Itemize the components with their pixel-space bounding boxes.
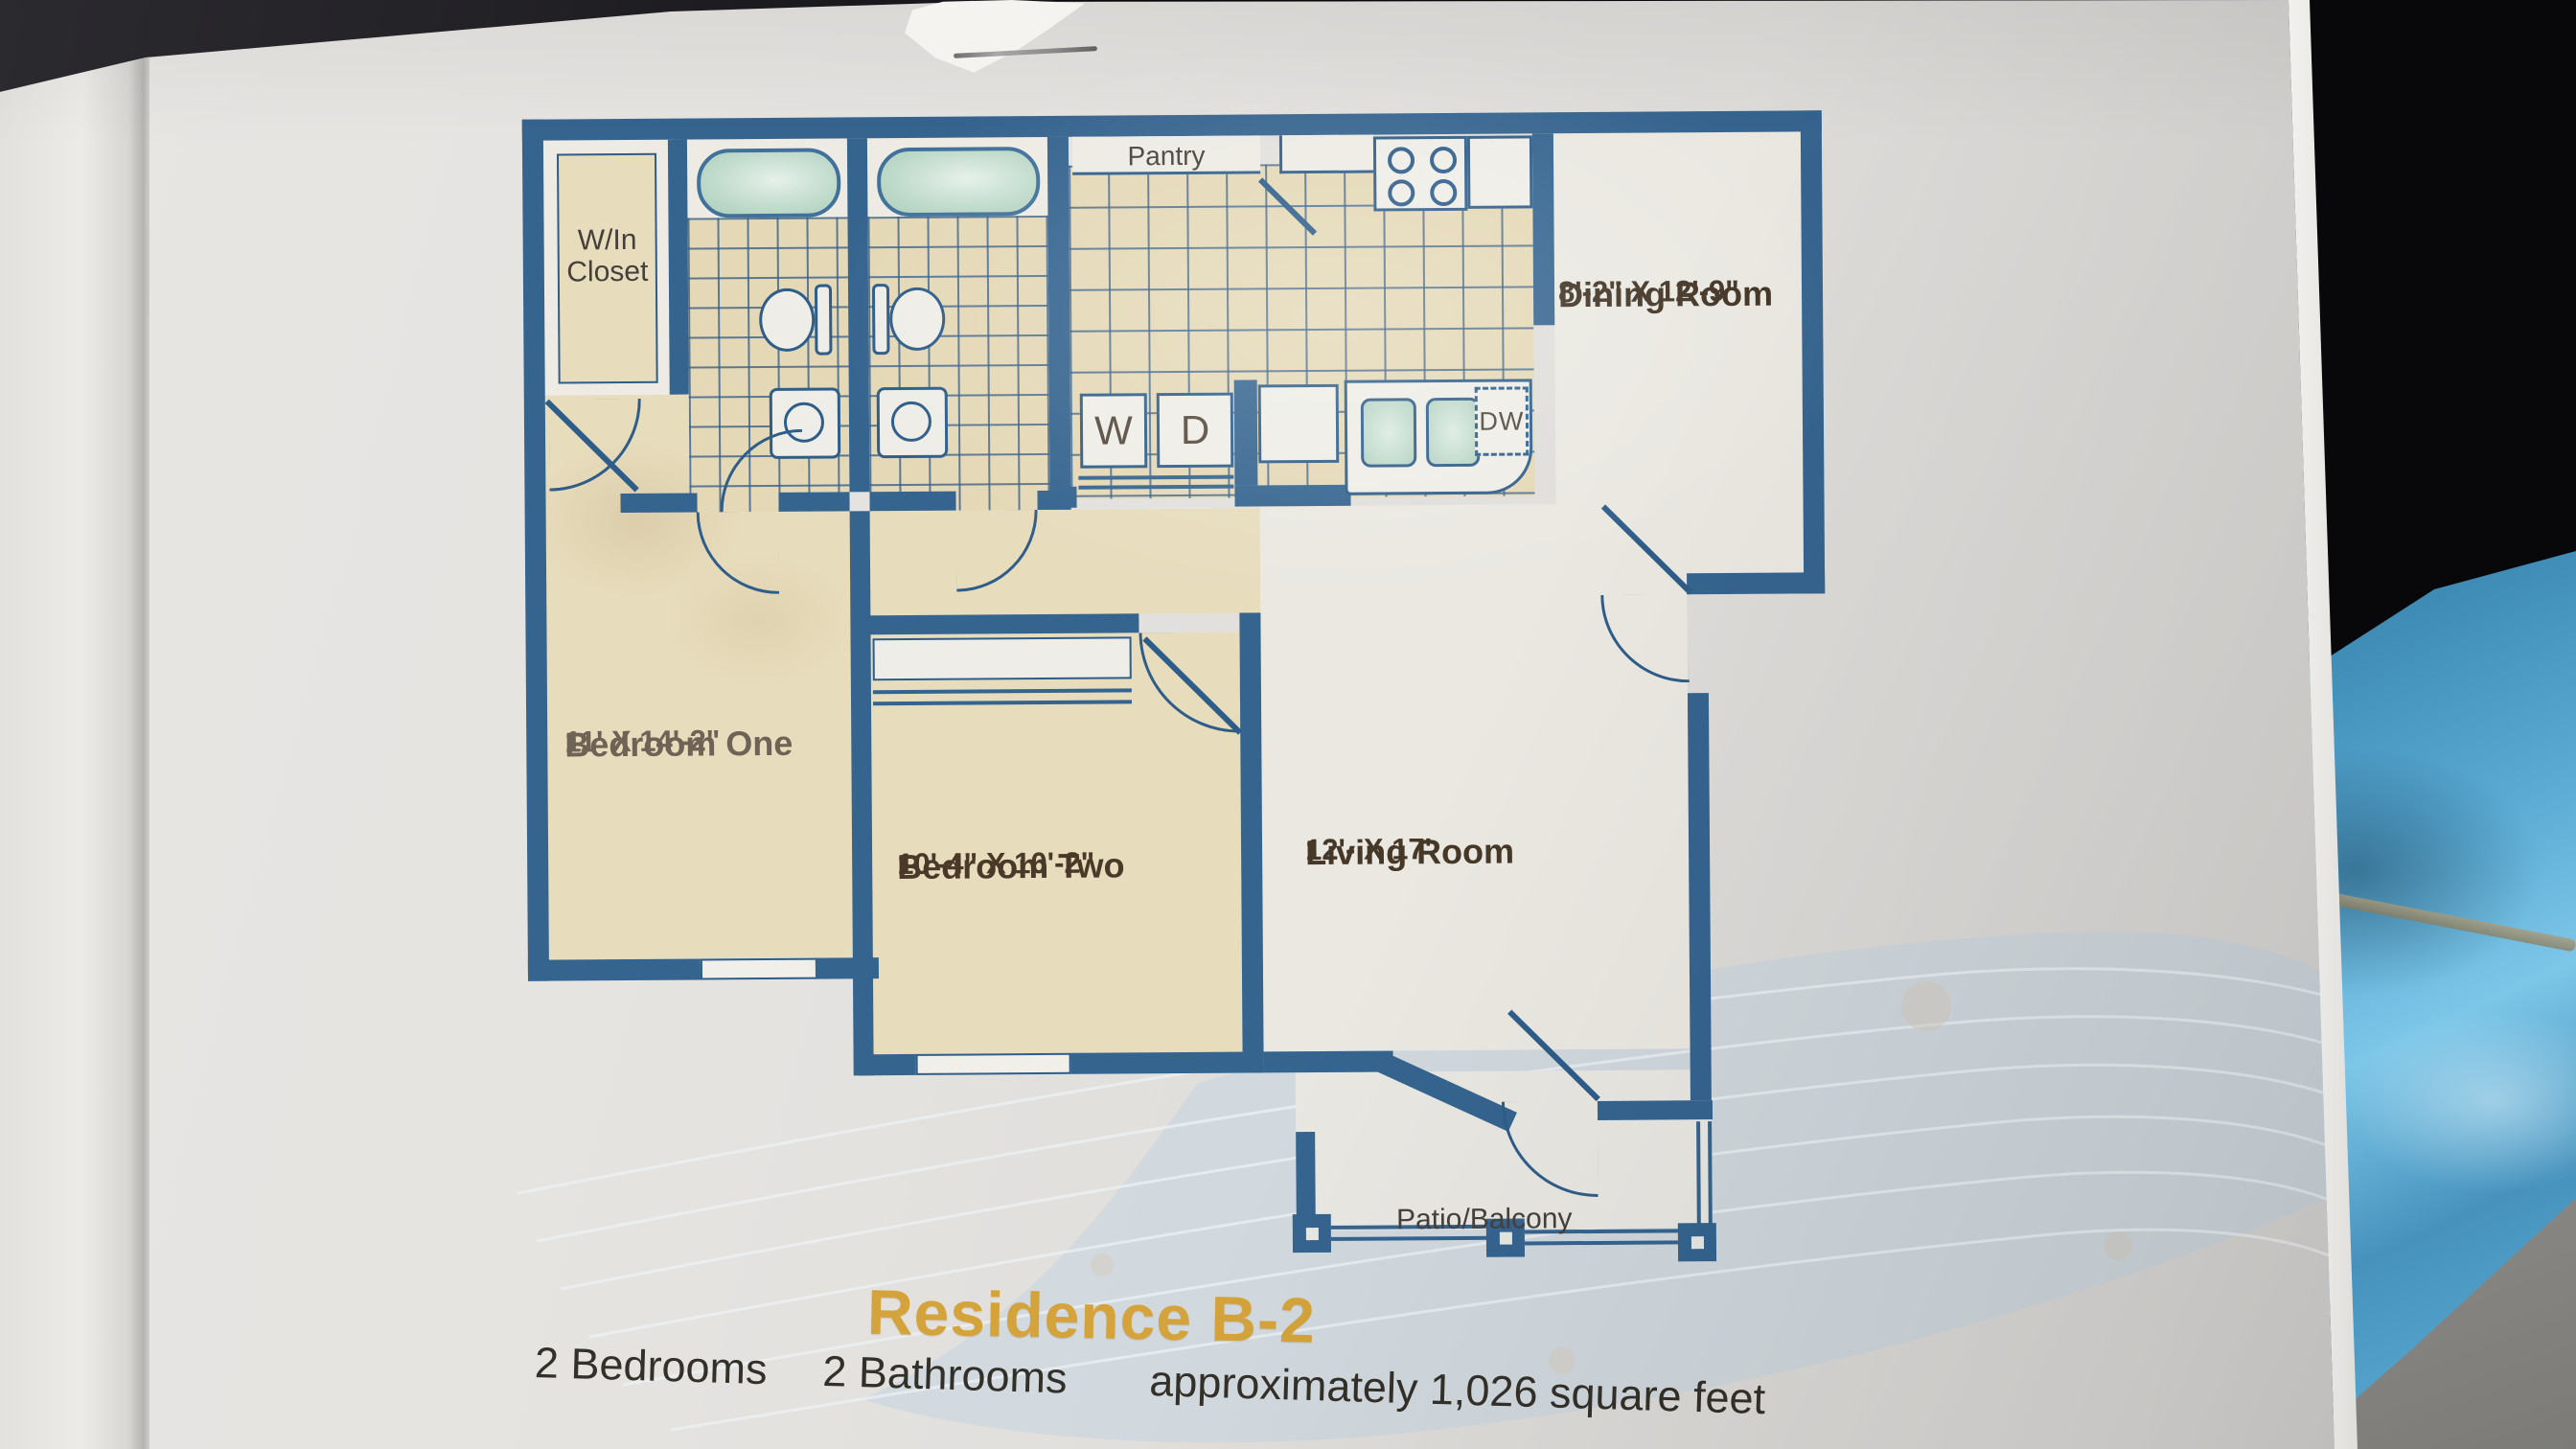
kitchen-sink: [1361, 398, 1417, 467]
dining-room-dims: 8'-2" X 12'-9": [1558, 274, 1739, 310]
stove-burner: [1388, 179, 1414, 206]
washer: W: [1080, 393, 1148, 468]
walk-in-closet-label: W/In Closet: [552, 224, 663, 288]
toilet-tank: [872, 284, 890, 355]
bedroom-one-window: [701, 958, 817, 980]
bedroom-two-dims: 10'-4" X 10'-2": [897, 846, 1094, 883]
living-room-floor: [1260, 503, 1690, 1051]
bathtub: [697, 148, 840, 218]
wall: [1687, 572, 1825, 594]
hallway: [870, 508, 1261, 615]
wall: [1049, 487, 1076, 508]
wall: [1047, 137, 1071, 510]
residence-title: Residence B-2: [866, 1276, 1404, 1359]
bathtub: [877, 147, 1040, 217]
page-fold: [0, 0, 149, 1449]
wall: [1234, 485, 1350, 507]
wall: [1239, 612, 1263, 1072]
brochure-page: W D DW: [0, 0, 2576, 1449]
patio-label: Patio/Balcony: [1341, 1203, 1628, 1236]
refrigerator: [1258, 384, 1340, 464]
bathroom-two-tile: [867, 216, 1049, 511]
wall: [850, 511, 874, 1075]
bathroom-sink: [877, 387, 949, 459]
toilet-bowl: [759, 288, 815, 352]
wall: [855, 613, 1138, 634]
stove-burner: [1388, 147, 1414, 173]
bedroom-one-dims: 11' X 14'-2": [564, 724, 720, 760]
dryer: D: [1157, 393, 1234, 469]
washer-label: W: [1094, 407, 1133, 453]
wall: [1598, 1100, 1713, 1120]
closet-shelf: [873, 636, 1132, 680]
wall: [1071, 1051, 1264, 1073]
wall: [1532, 133, 1554, 325]
dishwasher-label: DW: [1479, 406, 1524, 436]
toilet-bowl: [889, 287, 945, 351]
toilet-tank: [815, 285, 833, 356]
wall: [528, 958, 702, 980]
stove: [1373, 136, 1468, 212]
dryer-label: D: [1181, 407, 1210, 453]
stove-burner: [1430, 147, 1457, 173]
patio-post: [1293, 1214, 1331, 1253]
kitchen-sink: [1426, 398, 1481, 467]
wall: [620, 493, 697, 513]
patio-rail-right: [1696, 1121, 1713, 1232]
kitchen-counter: [1467, 135, 1533, 208]
closet-sliding-doors: [873, 688, 1132, 705]
stove-burner: [1430, 179, 1457, 206]
wall: [1264, 1050, 1393, 1072]
spec-bedrooms: 2 Bedrooms: [534, 1338, 768, 1394]
sink-basin: [891, 402, 931, 442]
floor-plan: W D DW: [522, 103, 1834, 1299]
bedroom-two-window: [916, 1053, 1071, 1075]
pantry-label: Pantry: [1072, 141, 1260, 172]
dishwasher: DW: [1475, 386, 1529, 455]
wall: [869, 492, 955, 512]
wall: [847, 138, 870, 492]
wall: [1688, 693, 1712, 1100]
spec-bathrooms: 2 Bathrooms: [822, 1346, 1069, 1404]
kitchen-cabinet: [1279, 135, 1373, 174]
wall: [1234, 379, 1258, 485]
laundry-doors: [1078, 475, 1233, 490]
patio-post: [1678, 1223, 1716, 1261]
wall: [668, 140, 689, 395]
living-room-dims: 12'- X 17': [1305, 832, 1432, 867]
wall: [859, 1054, 916, 1075]
wall: [1801, 110, 1826, 593]
